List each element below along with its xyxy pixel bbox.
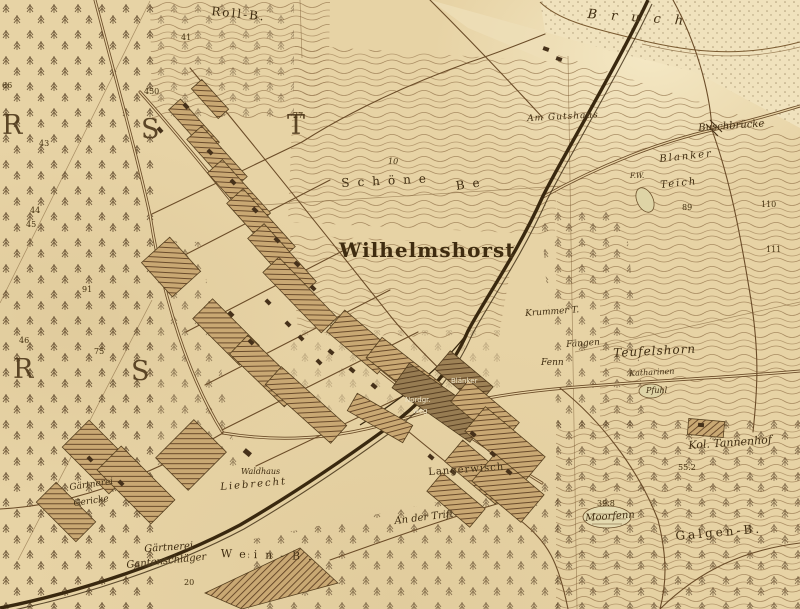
place-label: Liebrecht	[220, 477, 288, 493]
place-label: Fängen	[566, 339, 600, 350]
elevation-label: 27	[293, 112, 303, 120]
elevation-label: 55.2	[678, 464, 696, 472]
place-label: Buschbrücke	[698, 119, 765, 134]
elevation-label: 10	[388, 158, 398, 166]
elevation-label: 46	[19, 337, 29, 345]
place-label: Wilhelmshorst	[339, 240, 516, 260]
elevation-label: 66	[2, 82, 12, 90]
place-label: Kol. Tannenhof	[688, 434, 772, 451]
place-label: Teich	[660, 177, 698, 191]
elevation-label: 39.8	[597, 500, 615, 508]
place-label: Teufelshorn	[613, 343, 696, 359]
place-label: An der Trift	[394, 510, 454, 527]
elevation-label: 20	[184, 579, 194, 587]
place-label: Bruch	[587, 8, 697, 29]
elevation-label: 41	[181, 34, 191, 42]
place-label: Langerwisch	[428, 463, 505, 478]
place-label: F.W.	[630, 173, 644, 180]
elevation-label: 43	[39, 140, 49, 148]
region-letter: S	[141, 116, 160, 143]
place-label: Roll-B.	[211, 5, 267, 23]
elevation-label: 75	[94, 348, 104, 356]
region-letter: S	[131, 358, 150, 385]
place-label: Pfuhl	[646, 387, 667, 395]
region-letter: R	[2, 112, 22, 139]
elevation-label: 89	[682, 204, 692, 212]
place-label: Be	[455, 176, 488, 192]
place-label: Schöne	[341, 172, 434, 189]
place-label: Fenn	[541, 359, 564, 368]
historical-map: RSTRSRoll-B.BruchAm GutshausBuschbrückeB…	[0, 0, 800, 609]
place-label: Gärtnerei	[69, 478, 114, 493]
map-labels: RSTRSRoll-B.BruchAm GutshausBuschbrückeB…	[0, 0, 800, 609]
place-label: Waldhaus	[241, 468, 280, 476]
place-label: Krummer T.	[525, 306, 579, 319]
place-label: Gericke	[73, 495, 109, 509]
elevation-label: 45	[26, 221, 36, 229]
place-label: Katharinen	[629, 368, 675, 378]
elevation-label: 450	[144, 88, 159, 96]
place-label: Gantenschläger	[126, 553, 207, 571]
place-label: Blänker	[451, 378, 477, 385]
place-label: Galgen-B.	[675, 522, 762, 542]
region-letter: R	[13, 356, 33, 383]
place-label: Wein-B.	[221, 548, 320, 562]
elevation-label: 91	[82, 286, 92, 294]
elevation-label: 110	[761, 201, 776, 209]
place-label: Nordgr.	[405, 397, 431, 404]
place-label: Moorfenn	[585, 511, 635, 524]
elevation-label: 44	[30, 207, 40, 215]
elevation-label: 111	[766, 246, 781, 254]
place-label: Blanker	[659, 149, 713, 165]
place-label: Am Gutshaus	[527, 111, 599, 124]
place-label: weg	[413, 408, 427, 415]
